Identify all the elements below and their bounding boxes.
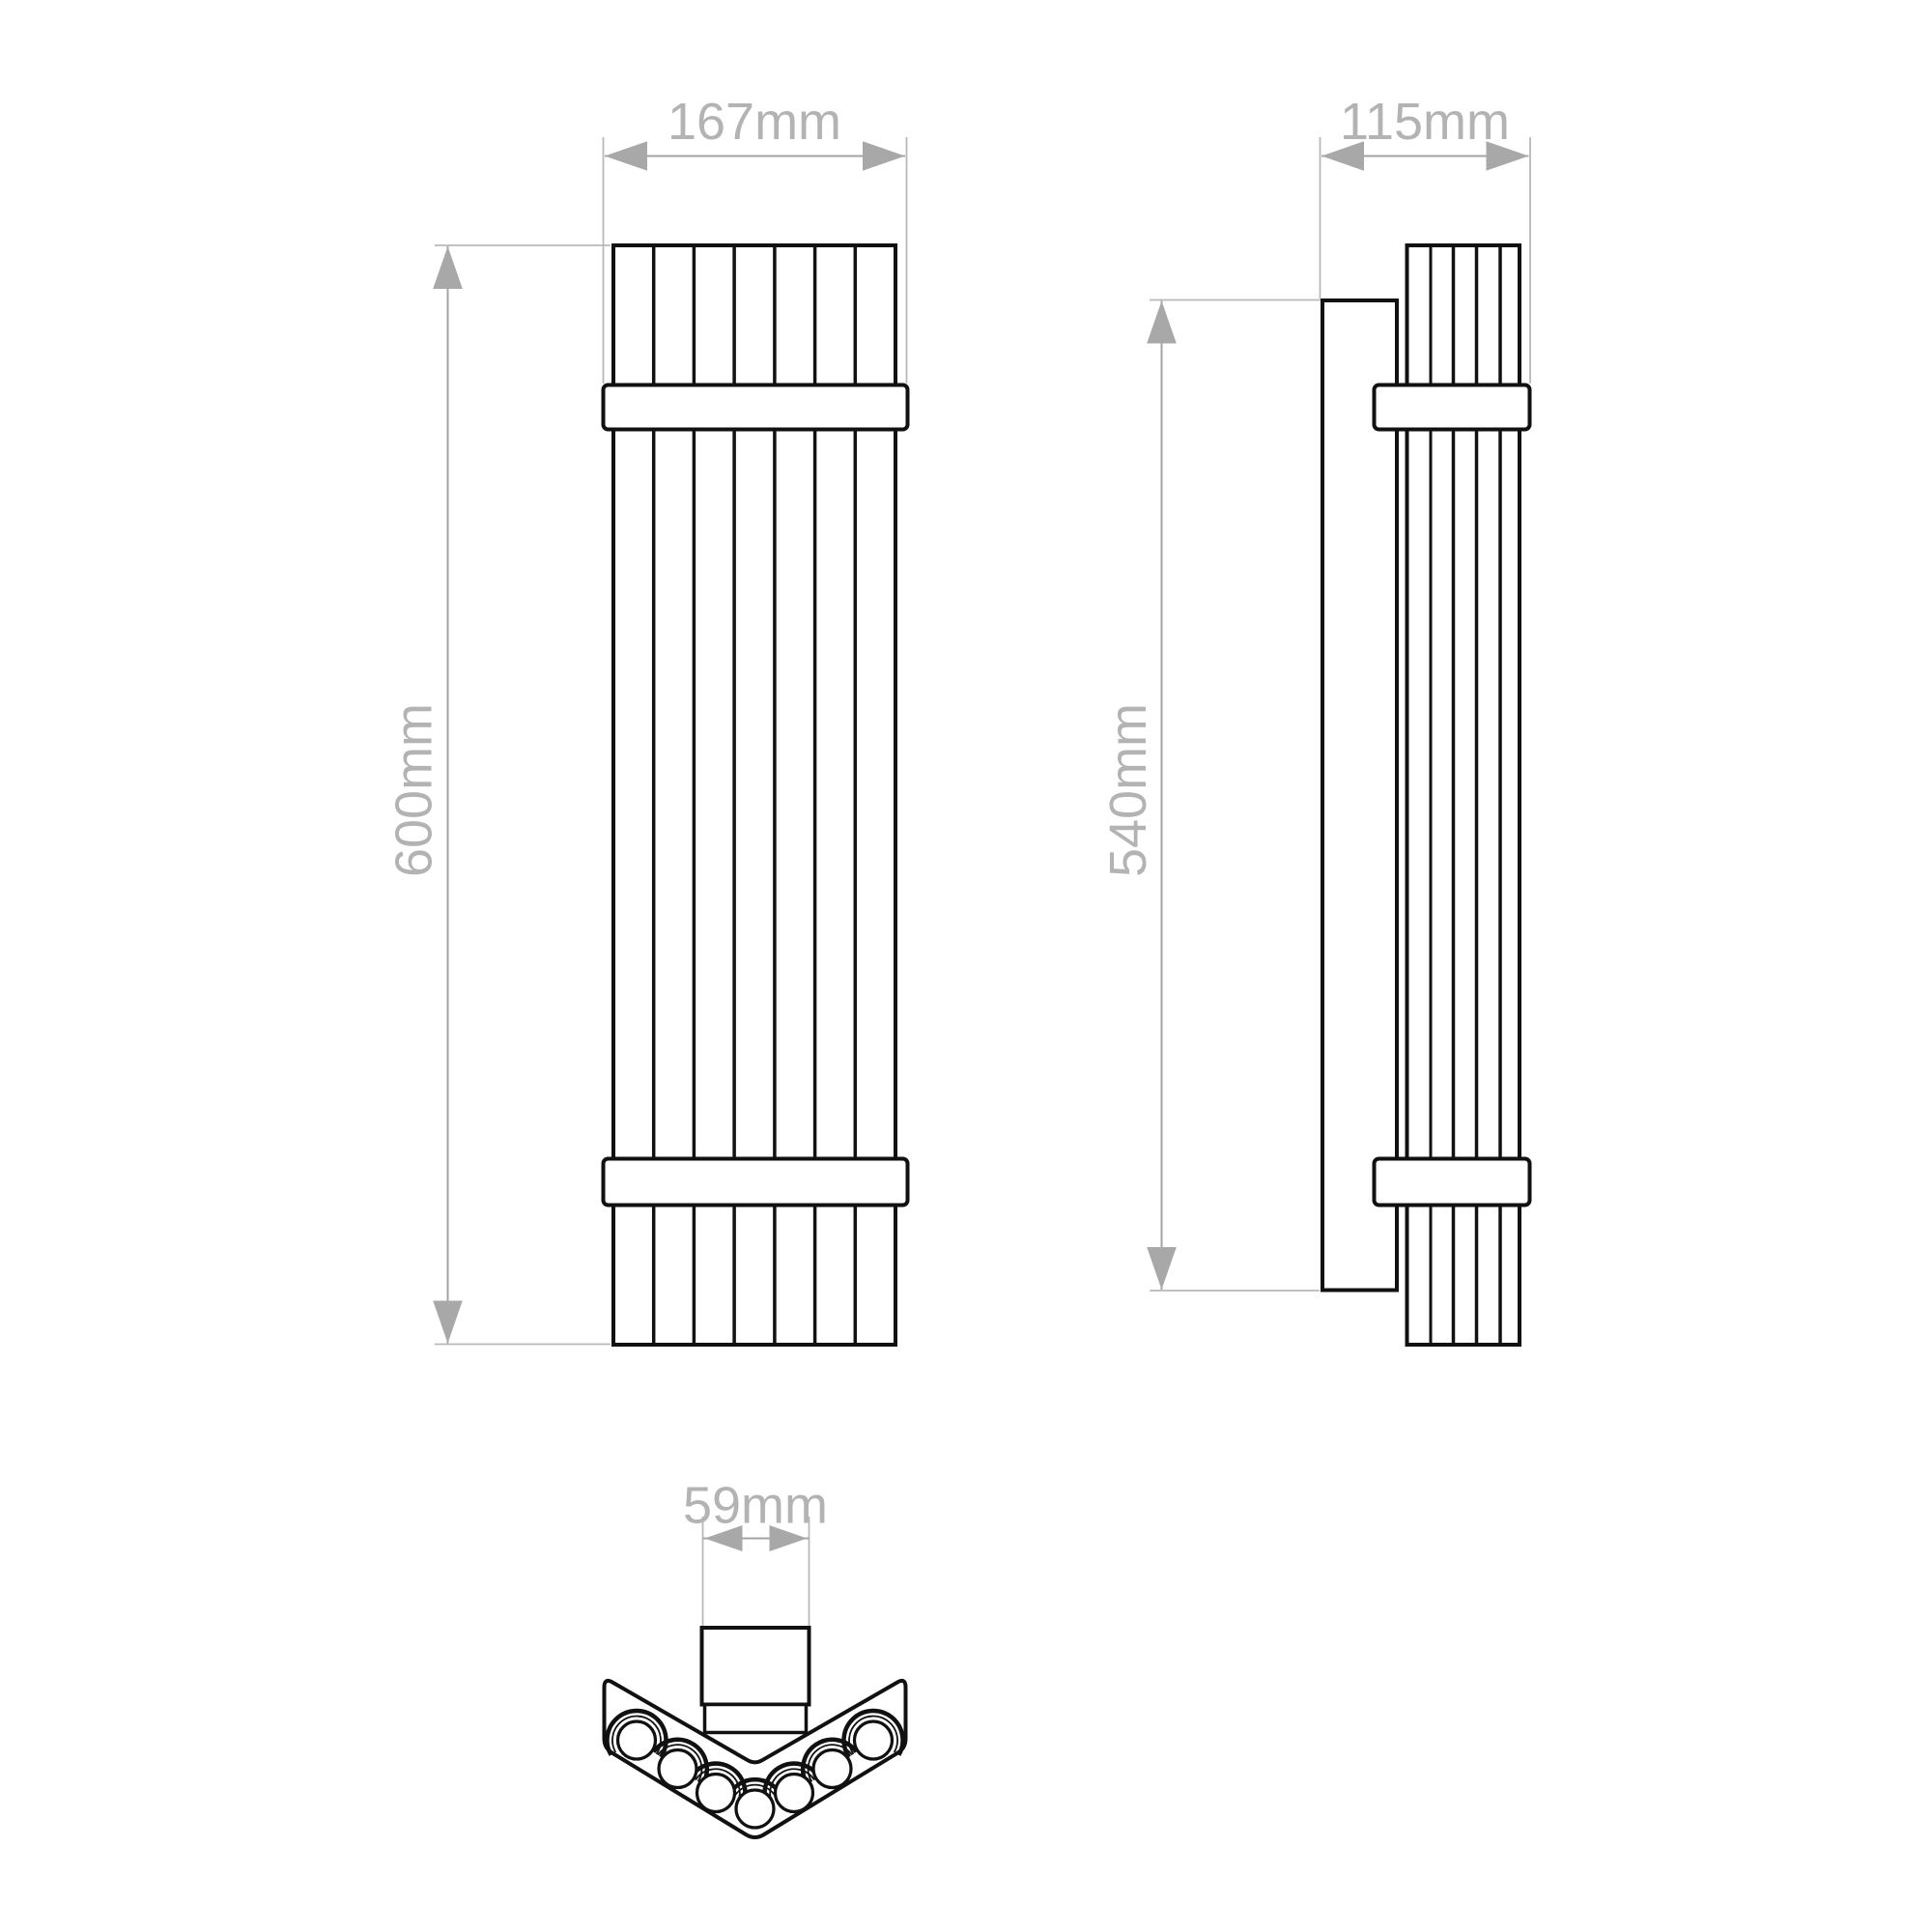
svg-text:115mm: 115mm: [1340, 93, 1510, 151]
svg-text:540mm: 540mm: [1099, 703, 1157, 877]
svg-text:59mm: 59mm: [683, 1477, 828, 1535]
svg-text:600mm: 600mm: [385, 703, 443, 877]
svg-text:167mm: 167mm: [668, 93, 841, 151]
